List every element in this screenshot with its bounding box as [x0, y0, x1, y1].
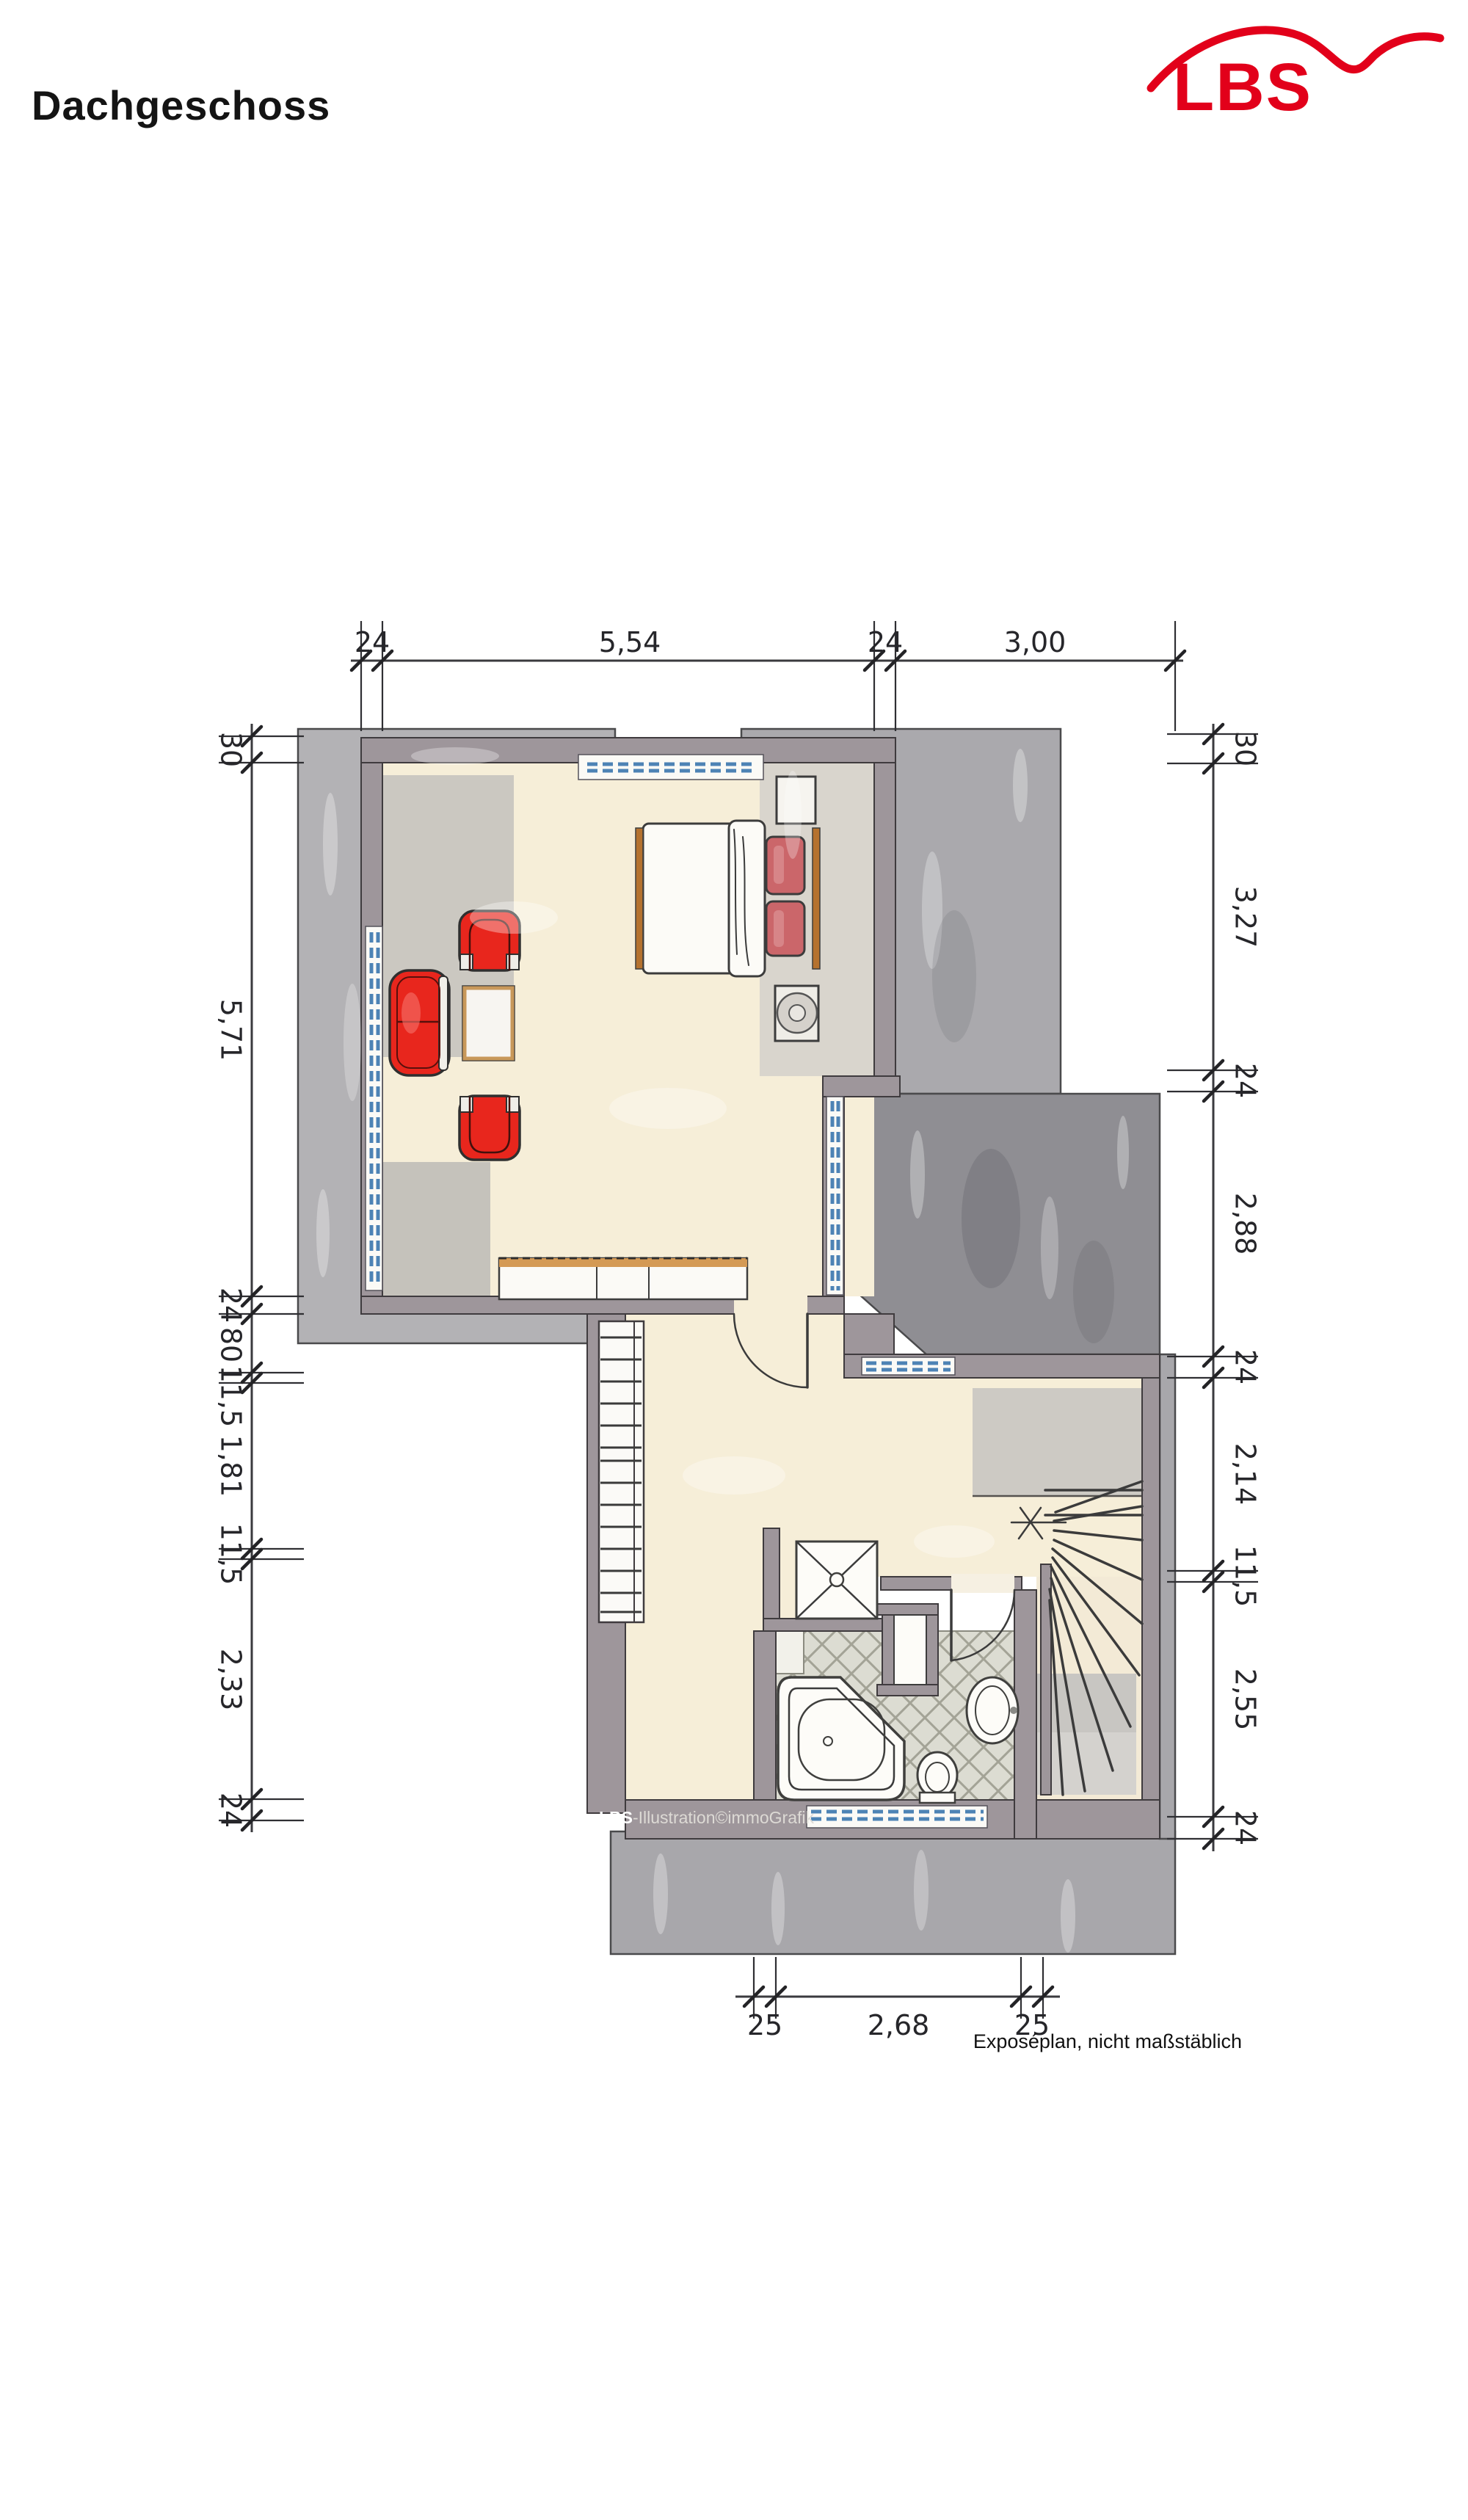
dim-label: 30 — [1229, 731, 1262, 766]
dim-label: 2,55 — [1229, 1668, 1262, 1731]
dim-label: 24 — [868, 626, 903, 658]
dim-label: 2,14 — [1229, 1443, 1262, 1506]
stair-stringer-wall — [1041, 1564, 1051, 1795]
bathroom-door-opening — [951, 1574, 1014, 1593]
dim-label: 2,68 — [868, 2009, 930, 2041]
shower — [796, 1542, 877, 1619]
dim-label: 25 — [747, 2009, 782, 2041]
lbs-logo: LBS — [1151, 30, 1440, 125]
shower-wall-bottom — [763, 1619, 882, 1631]
lbs-logo-text: LBS — [1173, 50, 1312, 125]
dim-label: 5,54 — [599, 626, 661, 658]
dim-label: 24 — [215, 1793, 247, 1828]
hallway-eave-zone — [973, 1388, 1142, 1496]
dim-label: 5,71 — [215, 999, 247, 1061]
window-bedroom-right — [826, 1097, 843, 1295]
window-left — [366, 926, 382, 1290]
dim-label: 24 — [1229, 1349, 1262, 1384]
window-bathroom — [807, 1806, 987, 1828]
duct-wall-2 — [926, 1604, 938, 1696]
dim-label: 11,5 — [215, 1523, 247, 1586]
shower-wall-left — [763, 1528, 780, 1631]
gallery-railing — [599, 1321, 644, 1622]
dim-label: 24 — [355, 626, 390, 658]
dim-label: 24 — [1229, 1063, 1262, 1098]
sideboard — [499, 1258, 747, 1299]
bed-rail-right — [813, 828, 820, 969]
toilet — [917, 1752, 957, 1803]
dim-label: 2,33 — [215, 1649, 247, 1711]
duct-wall-3 — [877, 1604, 938, 1615]
hallway-wall-right — [1142, 1378, 1160, 1839]
dim-label: 2,88 — [1229, 1193, 1262, 1255]
bed-pillow-2 — [766, 901, 804, 956]
duct-wall-1 — [882, 1604, 894, 1696]
coffee-table — [465, 988, 512, 1059]
washbasin — [967, 1677, 1018, 1743]
window-top — [578, 755, 763, 780]
dim-label: 24 — [1229, 1810, 1262, 1845]
watermark: LBS-Illustration©immoGrafik — [599, 1808, 814, 1827]
bedroom-wall-right — [874, 763, 895, 1097]
duct-niche — [894, 1615, 926, 1685]
dimension-chain-left: 30 5,71 24 80 11,5 1,81 11,5 2,33 24 — [215, 724, 305, 1832]
bed-rail-left — [636, 828, 643, 969]
dim-label: 30 — [215, 732, 247, 767]
page-title: Dachgeschoss — [32, 82, 330, 128]
dimension-chain-bottom: 25 2,68 25 — [735, 1957, 1060, 2041]
sloped-ceiling-zone-bottom — [382, 1162, 490, 1296]
dim-label: 24 — [215, 1288, 247, 1323]
dim-label: 1,81 — [215, 1435, 247, 1497]
dim-label: 80 — [215, 1327, 247, 1362]
dim-label: 3,00 — [1004, 626, 1067, 658]
dim-label: 11,5 — [215, 1365, 247, 1428]
niche-wall-bottom — [823, 1076, 900, 1097]
floorplan-page: Dachgeschoss LBS — [0, 0, 1468, 2520]
dimension-chain-top: 24 5,54 24 3,00 — [351, 621, 1185, 731]
dim-label: 11,5 — [1229, 1545, 1262, 1608]
dim-label: 3,27 — [1229, 886, 1262, 948]
scale-disclaimer: Exposéplan, nicht maßstäblich — [973, 2030, 1242, 2052]
window-hallway — [862, 1357, 955, 1375]
dimension-chain-right: 30 3,27 24 2,88 24 2,14 11,5 2,55 24 — [1167, 724, 1262, 1851]
duct-wall-4 — [877, 1685, 938, 1696]
